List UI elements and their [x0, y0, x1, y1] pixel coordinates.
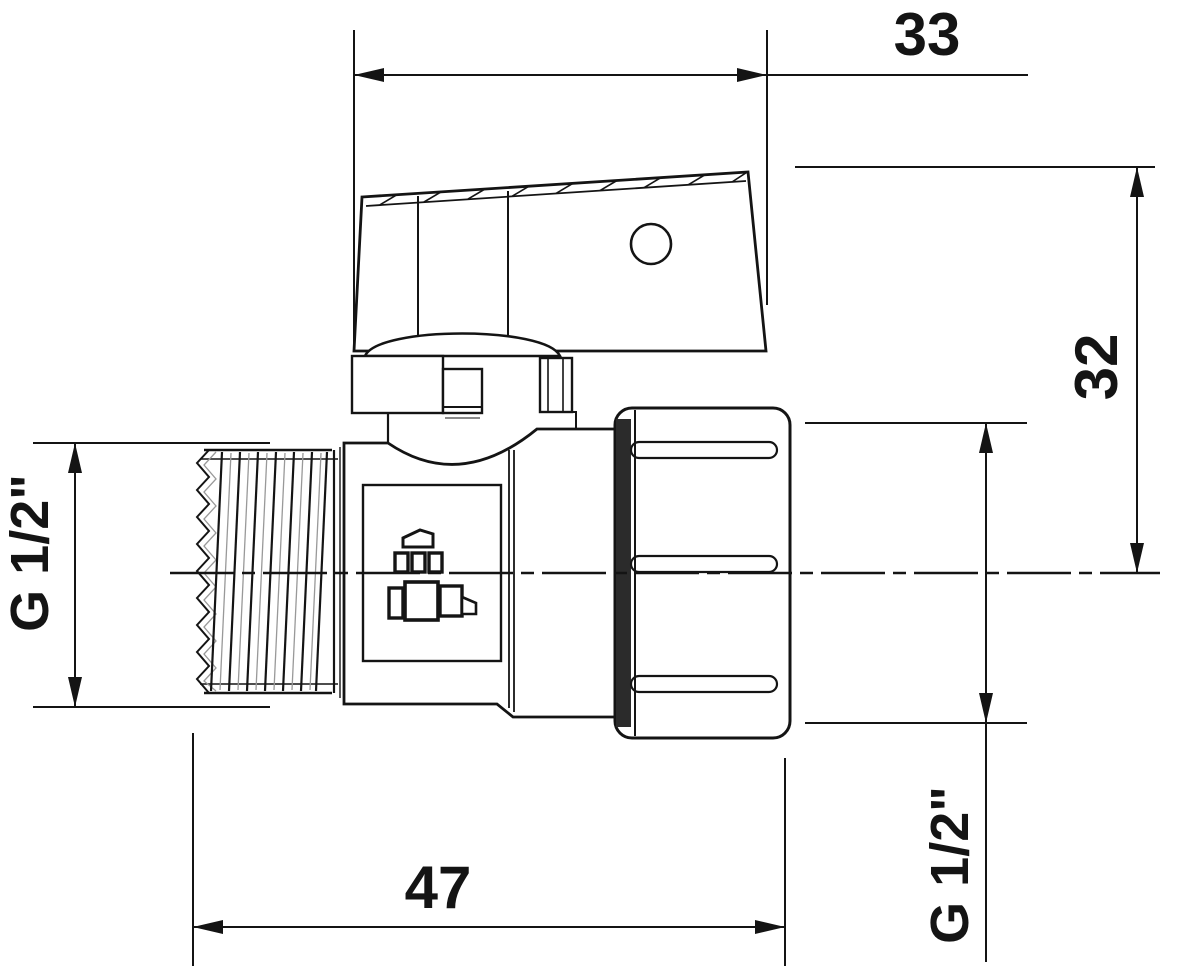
- dim-33-arrow-right: [737, 68, 767, 82]
- dimension-g12-right: G 1/2": [805, 423, 1027, 962]
- logo-body-center: [405, 582, 438, 620]
- dimension-32: 32: [795, 167, 1155, 573]
- logo-square: [412, 553, 425, 572]
- stem-step: [572, 412, 576, 429]
- dim-32-label: 32: [1063, 334, 1130, 401]
- dim-g12l-arrow-bottom: [68, 677, 82, 707]
- stem-left-block: [352, 356, 443, 413]
- logo-square: [429, 553, 442, 572]
- dim-32-arrow-bottom: [1130, 543, 1144, 573]
- lever-hole: [631, 224, 671, 264]
- thread-start-zigzag-light: [204, 452, 216, 691]
- dim-47-arrow-right: [755, 920, 785, 934]
- dim-33-label: 33: [894, 1, 961, 68]
- logo-body-right: [440, 586, 462, 616]
- ball-valve-drawing-page: 33 32 G 1/2" 47 G 1/2": [0, 0, 1181, 968]
- thread-start-zigzag: [197, 450, 209, 693]
- dim-g12l-arrow-top: [68, 443, 82, 473]
- dimension-47: 47: [193, 733, 785, 966]
- logo-body-left: [389, 588, 403, 618]
- logo-square: [395, 553, 408, 572]
- ball-valve-drawing: 33 32 G 1/2" 47 G 1/2": [0, 0, 1181, 968]
- dim-33-arrow-left: [354, 68, 384, 82]
- dim-g12r-arrow-top: [979, 423, 993, 453]
- lever-outline: [354, 172, 766, 351]
- stem-right-block: [540, 358, 572, 412]
- dim-g12l-label: G 1/2": [0, 474, 60, 632]
- dim-g12r-label: G 1/2": [920, 786, 980, 944]
- lever-handle: [354, 172, 766, 351]
- dim-47-label: 47: [405, 854, 472, 921]
- thread-flanks: [211, 452, 327, 691]
- dim-32-arrow-top: [1130, 167, 1144, 197]
- dim-g12r-arrow-bottom: [979, 693, 993, 723]
- dim-47-arrow-left: [193, 920, 223, 934]
